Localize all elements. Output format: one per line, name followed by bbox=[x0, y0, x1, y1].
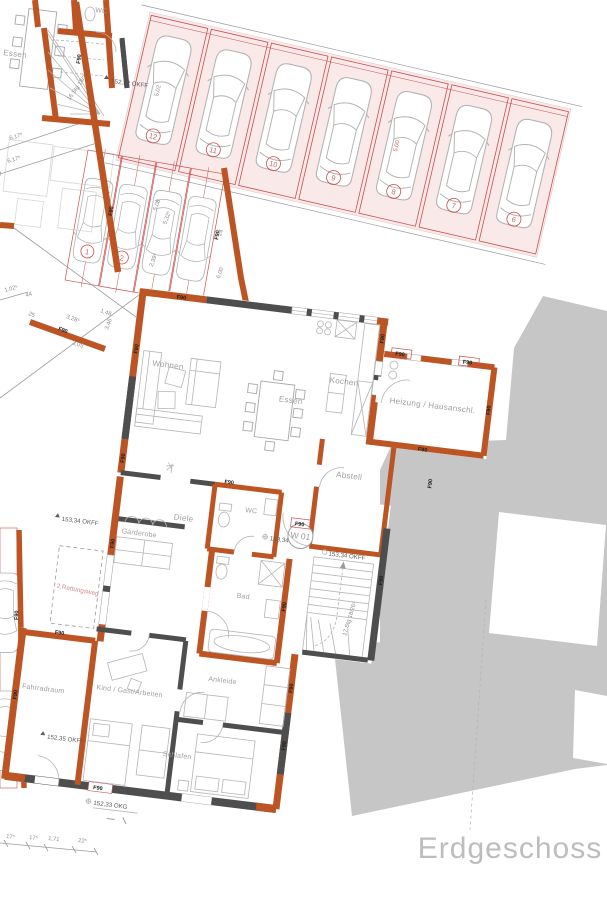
room-label-wc: WC bbox=[245, 507, 258, 515]
left-dim: 25 bbox=[27, 311, 35, 319]
fire-rating-label: F90 bbox=[294, 521, 304, 528]
fire-rating-label: F90 bbox=[108, 206, 115, 216]
fire-rating-label: F90 bbox=[14, 610, 20, 620]
floorplan-page: 6,17⁵ 6,17⁵ 1,02⁵ 44 25 1 bbox=[0, 0, 607, 900]
elevation-marker bbox=[55, 513, 60, 518]
fire-rating-label: F90 bbox=[214, 230, 222, 240]
door-symbols bbox=[106, 816, 127, 824]
fire-rating-label: F90 bbox=[395, 351, 405, 358]
wc-sink bbox=[85, 7, 95, 21]
bottom-dimension-chain: 17⁵ 17⁵ 1,71 22⁵ bbox=[0, 833, 98, 855]
fire-rating-label: F90 bbox=[378, 575, 385, 585]
elevation-okg: 152,33 OKG bbox=[93, 800, 128, 811]
site-wall bbox=[30, 322, 105, 349]
fire-rating-label: F90 bbox=[380, 334, 387, 344]
wall bbox=[0, 225, 14, 226]
fire-rating-label: F90 bbox=[176, 295, 186, 302]
neighbor-unit: Essen 16 Stg 18/27 WC 152,32 OKFF Wohnen bbox=[0, 0, 149, 350]
fire-rating-label: F90 bbox=[224, 479, 234, 486]
bottom-dim: 17⁵ bbox=[29, 834, 39, 842]
fire-rating-label: F90 bbox=[110, 538, 117, 548]
floorplan-drawing: 6,17⁵ 6,17⁵ 1,02⁵ 44 25 1 bbox=[0, 0, 607, 900]
neighbor-room-label-essen: Essen bbox=[3, 48, 28, 60]
neighbor-room-label-wohnen: Wohnen bbox=[0, 165, 2, 178]
fire-rating-label: F90 bbox=[120, 453, 127, 463]
fire-rating-label: F90 bbox=[288, 683, 295, 693]
window-mullion bbox=[359, 315, 365, 323]
fire-rating-label: F90 bbox=[281, 602, 288, 612]
bottom-dim: 1,71 bbox=[48, 836, 60, 843]
bottom-dim: 22⁵ bbox=[78, 837, 88, 845]
window-mullion bbox=[306, 309, 312, 317]
escape-route-label: 2.Rettungsweg bbox=[56, 583, 100, 598]
fire-rating-label: F90 bbox=[93, 785, 103, 792]
page-title: Erdgeschoss bbox=[418, 832, 602, 865]
fire-rating-label: F90 bbox=[427, 479, 434, 489]
fire-rating-label: F90 bbox=[417, 447, 427, 454]
wall bbox=[35, 0, 38, 27]
fire-rating-label: F90 bbox=[133, 344, 140, 354]
parking-dim: 6,00 bbox=[216, 267, 226, 280]
elevation-okff: 153,34 OKFF bbox=[61, 516, 99, 528]
left-dim: 1,02⁵ bbox=[4, 283, 20, 293]
context-courtyard-notch bbox=[489, 512, 606, 646]
fire-rating-label: F90 bbox=[281, 741, 288, 751]
left-dim: 3,28⁵ bbox=[65, 313, 81, 324]
neighbor-room-label-wc: WC bbox=[95, 7, 108, 15]
left-dim: 44 bbox=[25, 291, 34, 299]
left-dim: 1,48 bbox=[99, 308, 112, 318]
fire-rating-label: F90 bbox=[462, 360, 472, 367]
door-mullion bbox=[103, 585, 111, 592]
parcel-dim: 6,17⁵ bbox=[7, 154, 23, 165]
context-courtyard-notch-2 bbox=[573, 690, 607, 764]
wall bbox=[42, 118, 110, 124]
bottom-dim: 17⁵ bbox=[6, 833, 16, 841]
fire-rating-label: F90 bbox=[54, 630, 64, 637]
fire-rating-label: F90 bbox=[76, 54, 83, 64]
fire-rating-label: F90 bbox=[12, 690, 19, 700]
fire-rating-label: F90 bbox=[486, 405, 493, 415]
window-mullion bbox=[333, 312, 339, 320]
